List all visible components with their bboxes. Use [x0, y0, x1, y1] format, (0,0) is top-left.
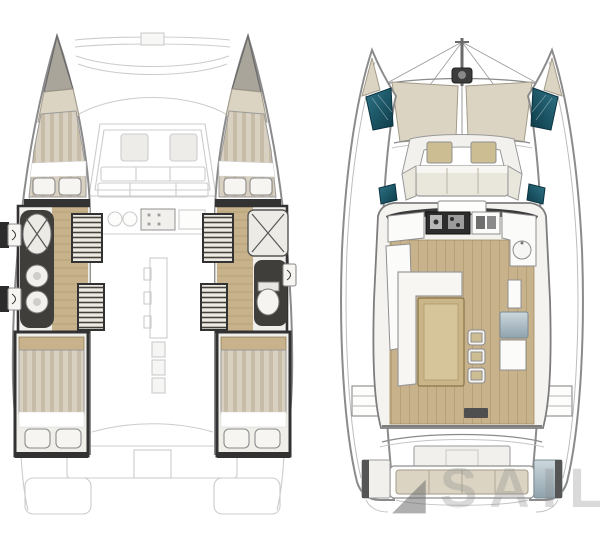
round-sink-icon: [513, 241, 531, 259]
seat-cushion: [471, 142, 496, 163]
trampoline: [392, 82, 532, 142]
catamaran-floorplan-image: ◢ SAILO: [0, 0, 600, 538]
starboard-cabinet: [500, 340, 526, 370]
main-deck-plan: [341, 38, 583, 512]
toilet-icon: [257, 282, 279, 315]
dining-chairs: [468, 330, 485, 383]
toilet-icon: [8, 288, 21, 310]
washbasin-icon: [26, 291, 48, 313]
saloon-table: [418, 298, 464, 386]
forward-cockpit: [398, 135, 526, 205]
cockpit-bench: [390, 466, 534, 498]
refrigerator: [500, 312, 528, 338]
galley-counter: [388, 212, 424, 242]
lower-deck-plan: [0, 33, 296, 514]
shower-icon: [23, 214, 51, 254]
washbasin-icon: [283, 264, 296, 286]
toilet-icon: [8, 224, 21, 246]
helm-module: [362, 460, 390, 498]
shower-icon: [248, 210, 288, 256]
starboard-cabinet: [508, 280, 521, 308]
door-mat: [464, 408, 488, 418]
galley-sink-icon: [472, 212, 500, 234]
washbasin-icon: [26, 265, 48, 287]
seat-cushion: [427, 142, 452, 163]
port-bathroom: [0, 210, 54, 328]
grill-module: [534, 460, 562, 498]
saloon: [373, 201, 550, 428]
windlass-icon: [452, 68, 472, 83]
stove-icon: [426, 212, 470, 234]
floorplan-canvas: [0, 0, 600, 538]
